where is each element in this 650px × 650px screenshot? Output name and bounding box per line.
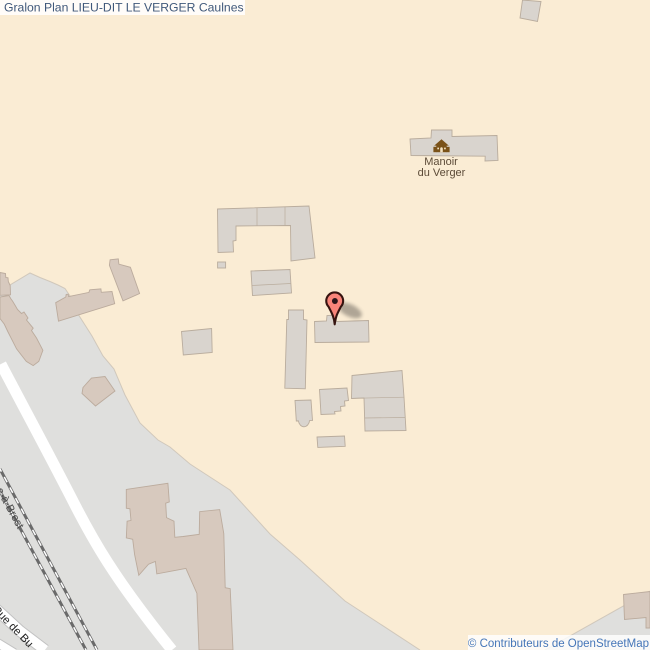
svg-text:© Contributeurs de OpenStreetM: © Contributeurs de OpenStreetMap	[468, 638, 649, 650]
svg-text:Gralon Plan LIEU-DIT LE VERGER: Gralon Plan LIEU-DIT LE VERGER Caulnes	[4, 1, 244, 15]
svg-text:du Verger: du Verger	[418, 167, 466, 179]
